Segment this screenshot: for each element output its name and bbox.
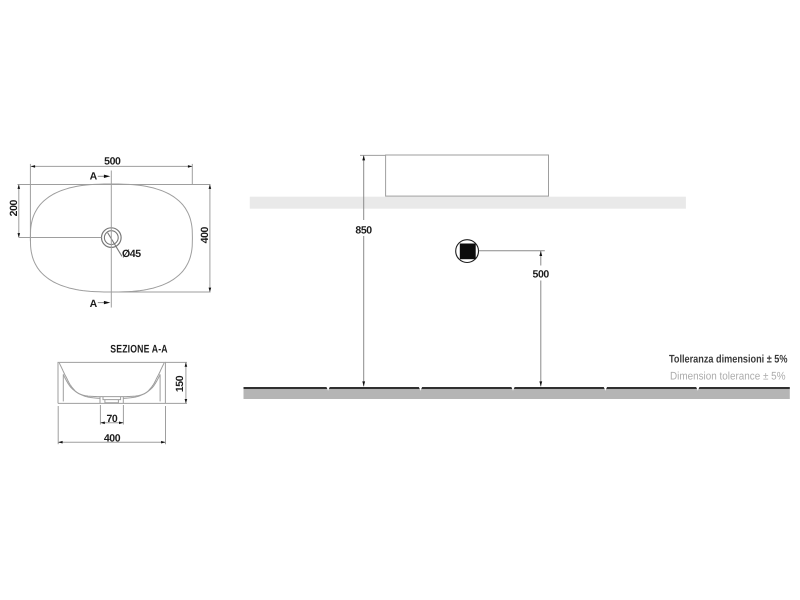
svg-text:400: 400	[104, 432, 121, 444]
svg-text:850: 850	[355, 224, 372, 236]
svg-text:150: 150	[174, 375, 186, 392]
svg-text:Tolleranza dimensioni ± 5%: Tolleranza dimensioni ± 5%	[669, 353, 788, 365]
svg-text:SEZIONE A-A: SEZIONE A-A	[110, 344, 167, 356]
svg-text:Ø45: Ø45	[122, 248, 141, 260]
svg-text:Dimension tolerance ± 5%: Dimension tolerance ± 5%	[670, 371, 786, 383]
svg-text:500: 500	[104, 156, 121, 168]
svg-text:70: 70	[106, 413, 117, 425]
svg-text:500: 500	[533, 268, 550, 280]
svg-text:A: A	[90, 298, 98, 310]
svg-text:A: A	[90, 171, 98, 183]
svg-text:200: 200	[8, 199, 20, 216]
svg-text:400: 400	[199, 226, 211, 243]
